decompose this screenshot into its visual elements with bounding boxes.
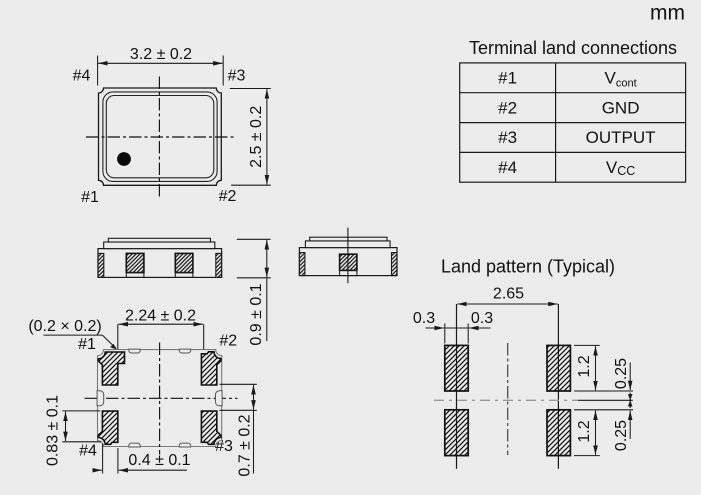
- svg-text:0.3: 0.3: [413, 310, 435, 327]
- svg-text:#1: #1: [81, 189, 99, 206]
- svg-text:#4: #4: [498, 158, 517, 177]
- svg-text:(0.2 × 0.2): (0.2 × 0.2): [28, 318, 101, 335]
- svg-text:1.2: 1.2: [576, 420, 593, 442]
- svg-text:mm: mm: [650, 2, 685, 25]
- svg-text:#2: #2: [219, 333, 237, 350]
- svg-text:#2: #2: [219, 188, 237, 205]
- svg-text:#3: #3: [228, 68, 246, 85]
- svg-text:#3: #3: [498, 128, 517, 147]
- svg-text:0.25: 0.25: [613, 358, 630, 389]
- svg-text:#2: #2: [498, 98, 517, 117]
- svg-text:#4: #4: [79, 443, 97, 460]
- svg-text:OUTPUT: OUTPUT: [586, 128, 656, 147]
- svg-text:#4: #4: [73, 68, 91, 85]
- svg-text:2.5 ± 0.2: 2.5 ± 0.2: [248, 106, 265, 168]
- svg-text:0.25: 0.25: [613, 420, 630, 451]
- svg-text:3.2 ± 0.2: 3.2 ± 0.2: [130, 46, 192, 63]
- svg-text:0.4 ± 0.1: 0.4 ± 0.1: [128, 452, 190, 469]
- svg-text:GND: GND: [602, 98, 640, 117]
- svg-text:0.83 ± 0.1: 0.83 ± 0.1: [45, 395, 62, 466]
- svg-text:#1: #1: [498, 69, 517, 88]
- svg-text:2.65: 2.65: [493, 285, 524, 302]
- svg-text:Terminal land connections: Terminal land connections: [469, 38, 677, 58]
- svg-text:0.9 ± 0.1: 0.9 ± 0.1: [248, 283, 265, 345]
- svg-text:0.3: 0.3: [471, 310, 493, 327]
- svg-text:0.7 ± 0.2: 0.7 ± 0.2: [237, 414, 254, 476]
- svg-text:1.2: 1.2: [576, 355, 593, 377]
- svg-text:#1: #1: [78, 336, 96, 353]
- svg-text:2.24 ± 0.2: 2.24 ± 0.2: [125, 308, 196, 325]
- svg-text:Land pattern (Typical): Land pattern (Typical): [441, 257, 615, 277]
